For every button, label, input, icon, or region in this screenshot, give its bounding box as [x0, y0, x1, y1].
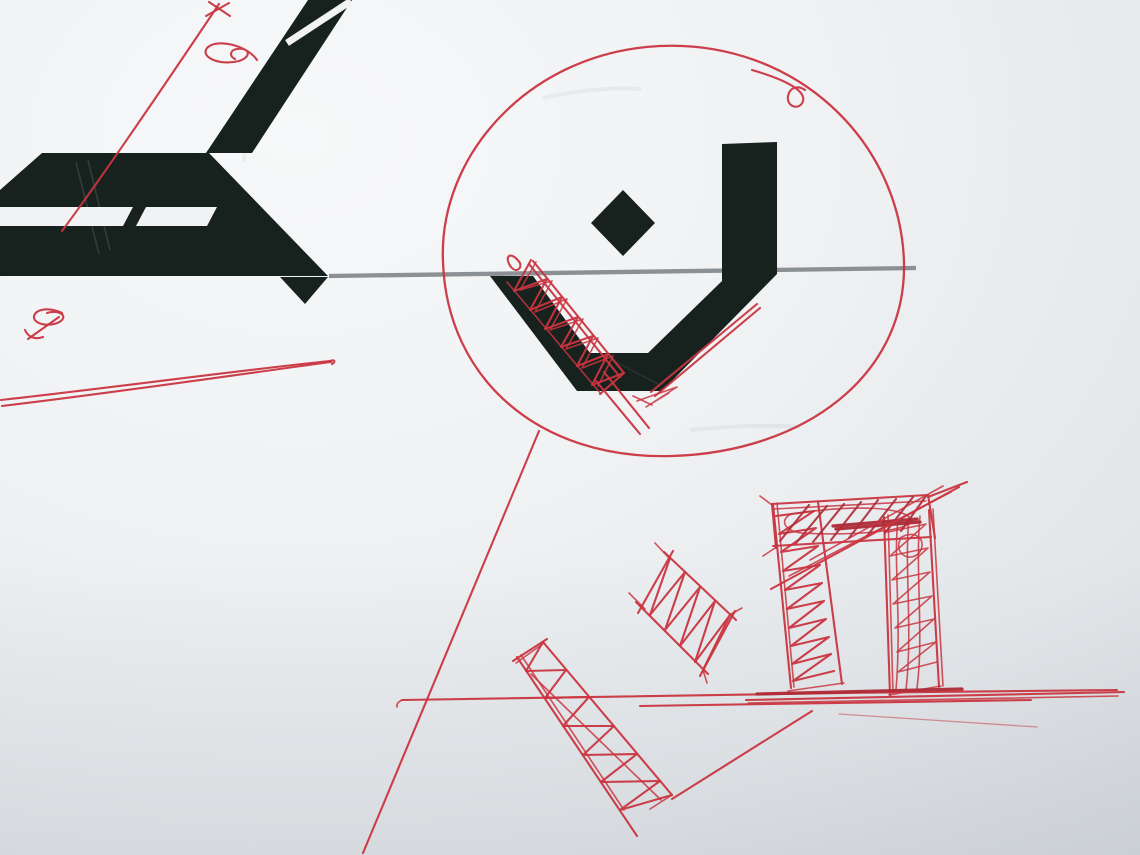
bar-slit-left [0, 207, 133, 226]
sketch-photo [0, 0, 1140, 855]
sketch-canvas [0, 0, 1140, 855]
bar-slit-right [136, 207, 217, 226]
